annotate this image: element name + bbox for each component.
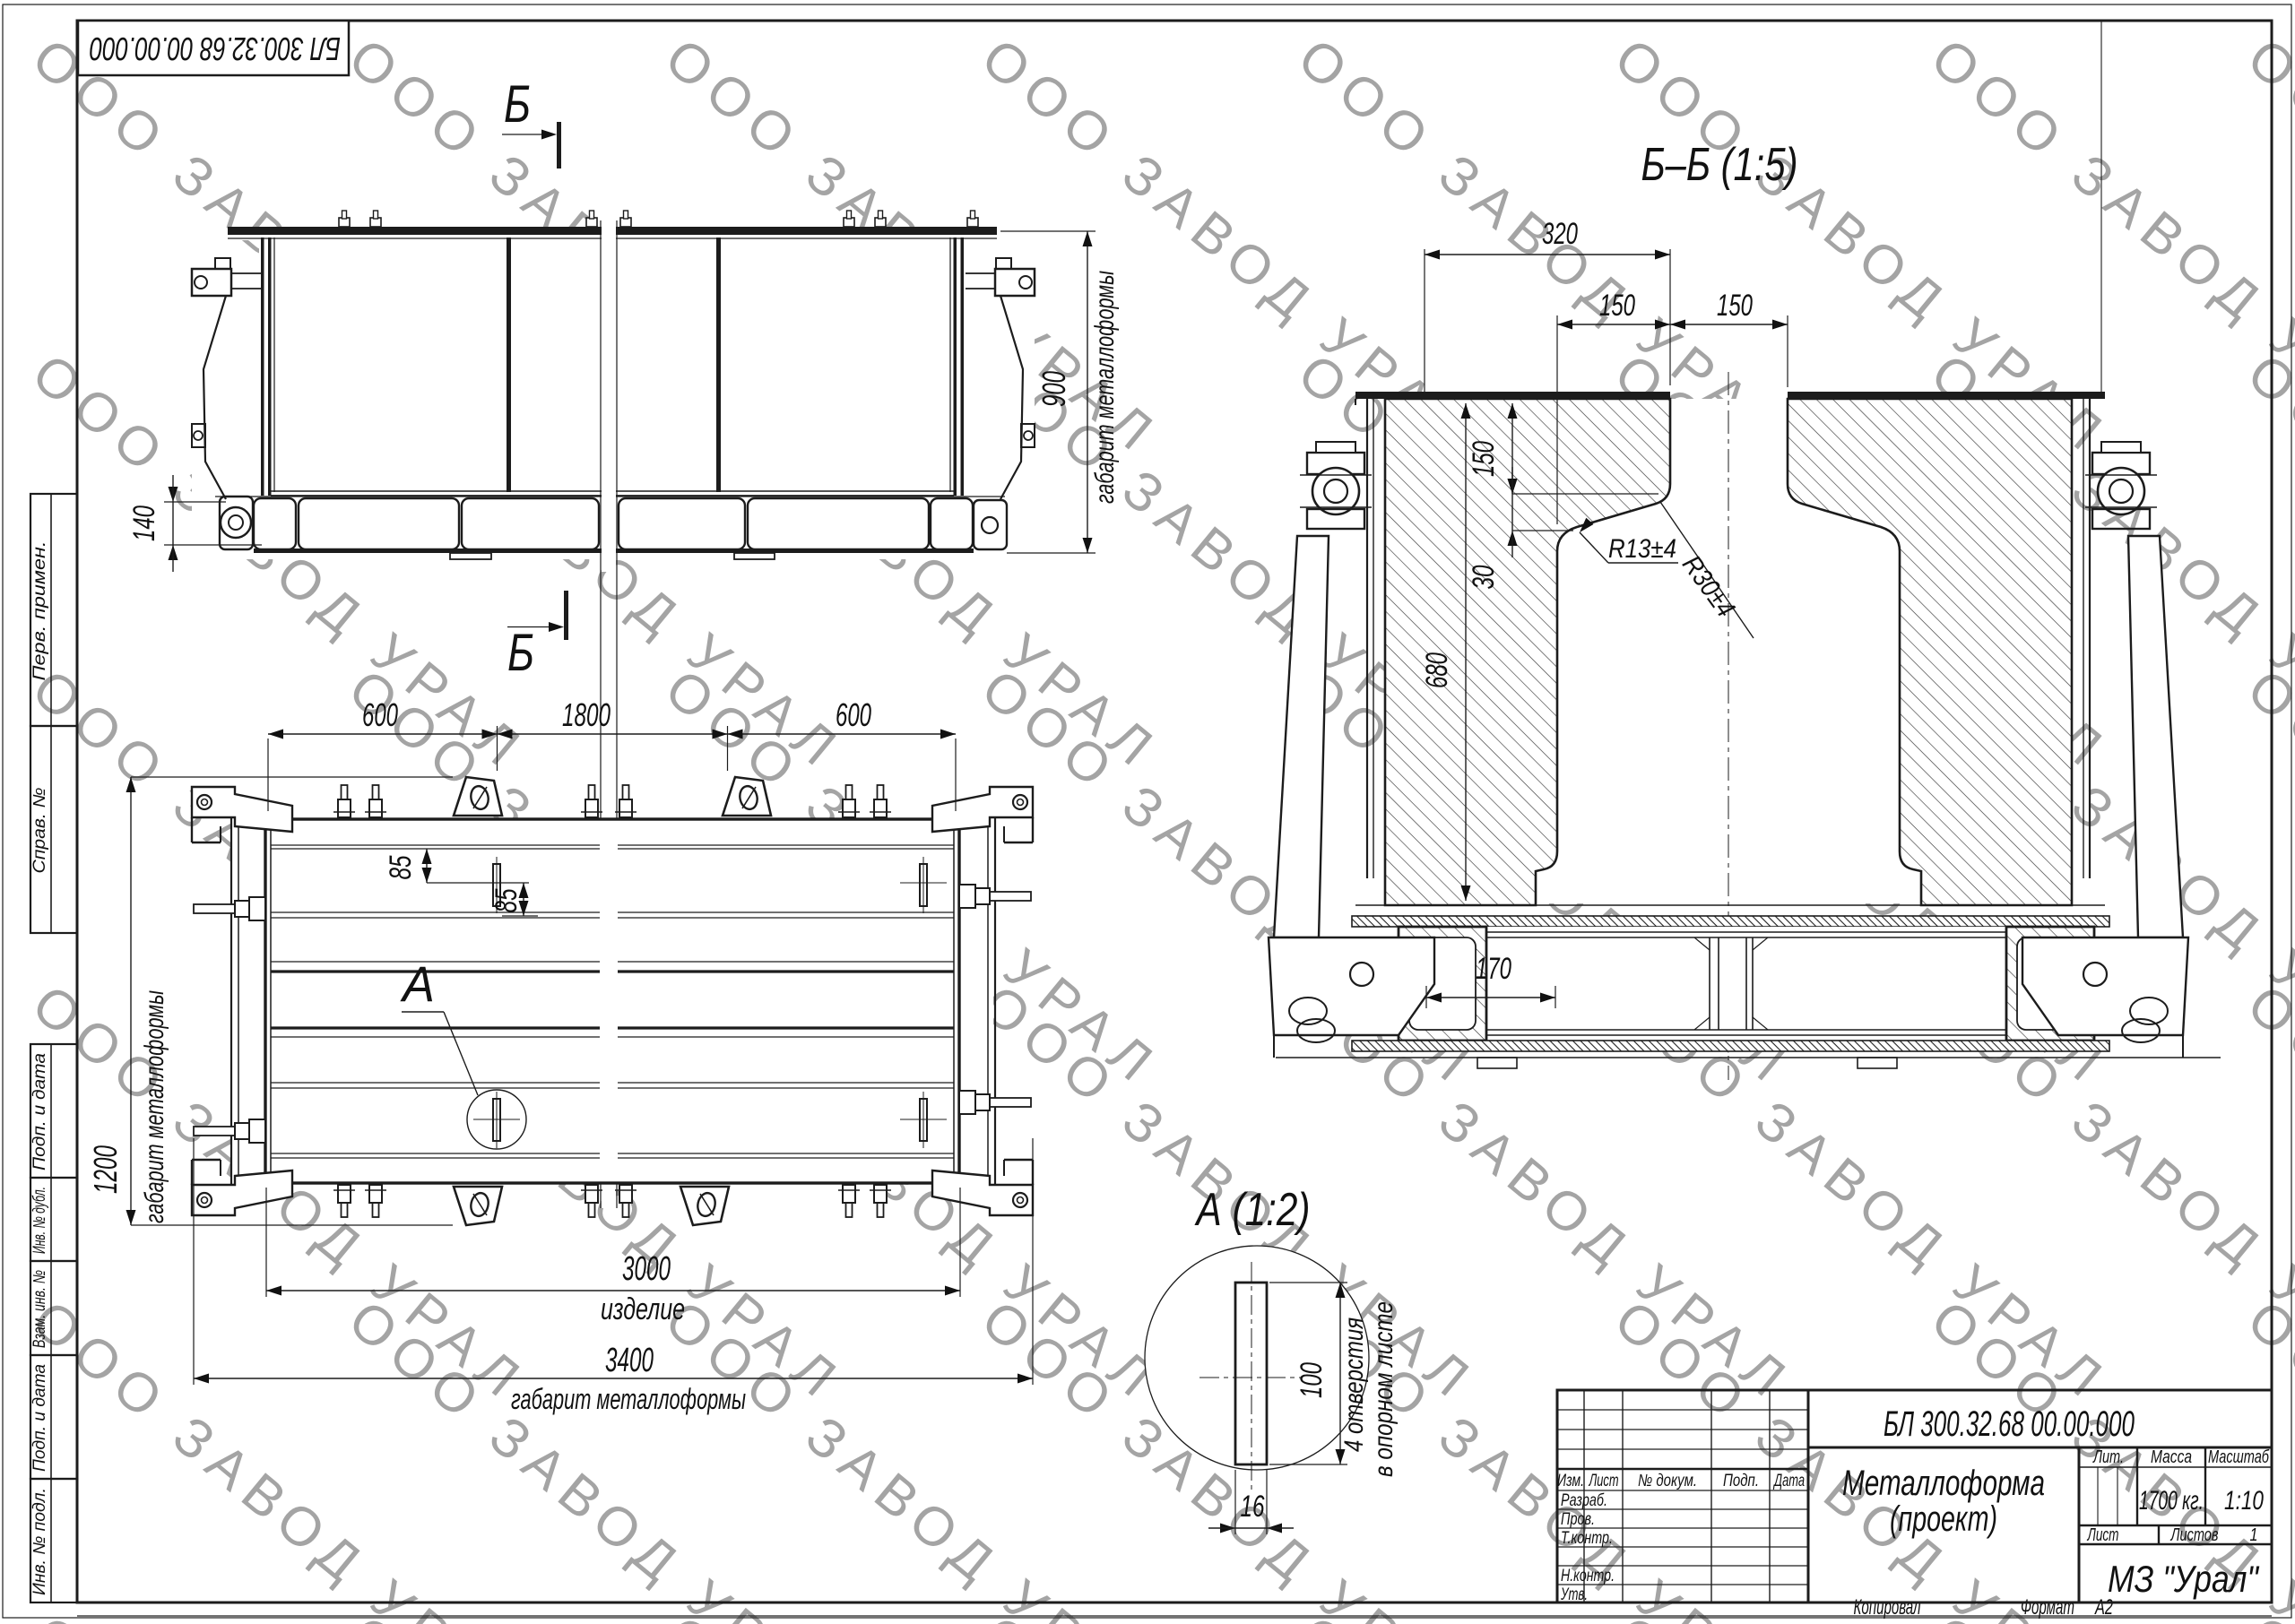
svg-text:Лист: Лист — [2086, 1525, 2118, 1545]
svg-text:габарит металлоформы: габарит металлоформы — [511, 1383, 746, 1415]
svg-text:1200: 1200 — [87, 1145, 124, 1194]
svg-text:Дата: Дата — [1773, 1472, 1805, 1490]
svg-text:16: 16 — [1241, 1490, 1265, 1524]
svg-text:150: 150 — [1717, 289, 1753, 323]
svg-text:1800: 1800 — [562, 696, 611, 733]
svg-text:МЗ "Урал": МЗ "Урал" — [2108, 1558, 2260, 1600]
svg-text:(проект): (проект) — [1890, 1499, 1997, 1539]
svg-text:А: А — [400, 955, 435, 1012]
svg-text:85: 85 — [384, 855, 418, 879]
svg-text:Т.контр.: Т.контр. — [1561, 1529, 1613, 1548]
svg-text:Формат: Формат — [2021, 1595, 2074, 1620]
svg-text:Б: Б — [507, 624, 534, 682]
svg-text:Масштаб: Масштаб — [2208, 1447, 2270, 1467]
svg-text:Лист: Лист — [1588, 1472, 1618, 1490]
svg-text:900: 900 — [1035, 371, 1072, 407]
svg-text:Подп. и дата: Подп. и дата — [30, 1364, 49, 1472]
svg-text:Утв.: Утв. — [1560, 1585, 1588, 1604]
svg-text:Масса: Масса — [2151, 1447, 2192, 1467]
svg-text:Металлоформа: Металлоформа — [1842, 1464, 2045, 1503]
svg-text:3400: 3400 — [605, 1342, 654, 1379]
svg-text:Копировал: Копировал — [1854, 1595, 1921, 1620]
svg-text:1700 кг.: 1700 кг. — [2139, 1486, 2204, 1516]
svg-text:Н.контр.: Н.контр. — [1561, 1567, 1615, 1585]
svg-text:30: 30 — [1467, 565, 1501, 589]
svg-text:3000: 3000 — [622, 1250, 671, 1288]
svg-text:85: 85 — [489, 888, 524, 912]
svg-text:600: 600 — [836, 696, 871, 733]
svg-text:680: 680 — [1420, 652, 1454, 688]
svg-text:Листов: Листов — [2169, 1525, 2218, 1545]
svg-text:БЛ 300.32.68 00.00.000: БЛ 300.32.68 00.00.000 — [1884, 1404, 2135, 1444]
svg-text:4 отверстия: 4 отверстия — [1339, 1317, 1369, 1452]
svg-text:Разраб.: Разраб. — [1561, 1491, 1607, 1510]
svg-text:габарит металлоформы: габарит металлоформы — [1090, 271, 1120, 504]
svg-text:R13±4: R13±4 — [1608, 534, 1676, 564]
svg-text:170: 170 — [1476, 952, 1511, 986]
svg-text:Инв. № дубл.: Инв. № дубл. — [30, 1187, 49, 1254]
svg-text:Инв. № подл.: Инв. № подл. — [30, 1488, 49, 1595]
svg-text:Подп. и дата: Подп. и дата — [30, 1053, 49, 1170]
svg-text:Подп.: Подп. — [1723, 1472, 1759, 1490]
svg-text:Справ. №: Справ. № — [30, 788, 49, 874]
svg-text:изделие: изделие — [601, 1292, 685, 1326]
svg-text:1: 1 — [2250, 1525, 2258, 1545]
svg-text:150: 150 — [1599, 289, 1635, 323]
svg-text:Б–Б (1:5): Б–Б (1:5) — [1641, 139, 1798, 191]
svg-text:№ докум.: № докум. — [1638, 1472, 1697, 1490]
svg-text:габарит металлоформы: габарит металлоформы — [140, 990, 169, 1223]
svg-text:БЛ 300.32.68 00.00.000: БЛ 300.32.68 00.00.000 — [90, 30, 341, 67]
svg-text:в опорном листе: в опорном листе — [1369, 1301, 1399, 1477]
svg-text:Б: Б — [504, 75, 531, 134]
svg-text:150: 150 — [1467, 441, 1501, 477]
svg-text:600: 600 — [362, 696, 398, 733]
svg-text:А (1:2): А (1:2) — [1194, 1184, 1310, 1236]
svg-text:Пров.: Пров. — [1561, 1510, 1595, 1529]
svg-text:Перв. примен.: Перв. примен. — [30, 541, 49, 681]
svg-text:1:10: 1:10 — [2224, 1486, 2264, 1516]
svg-text:Лит.: Лит. — [2092, 1447, 2124, 1467]
svg-text:100: 100 — [1295, 1362, 1329, 1398]
svg-text:Изм.: Изм. — [1557, 1472, 1584, 1490]
svg-text:320: 320 — [1542, 217, 1578, 251]
svg-text:Взам. инв. №: Взам. инв. № — [30, 1270, 49, 1348]
svg-text:140: 140 — [127, 505, 161, 541]
